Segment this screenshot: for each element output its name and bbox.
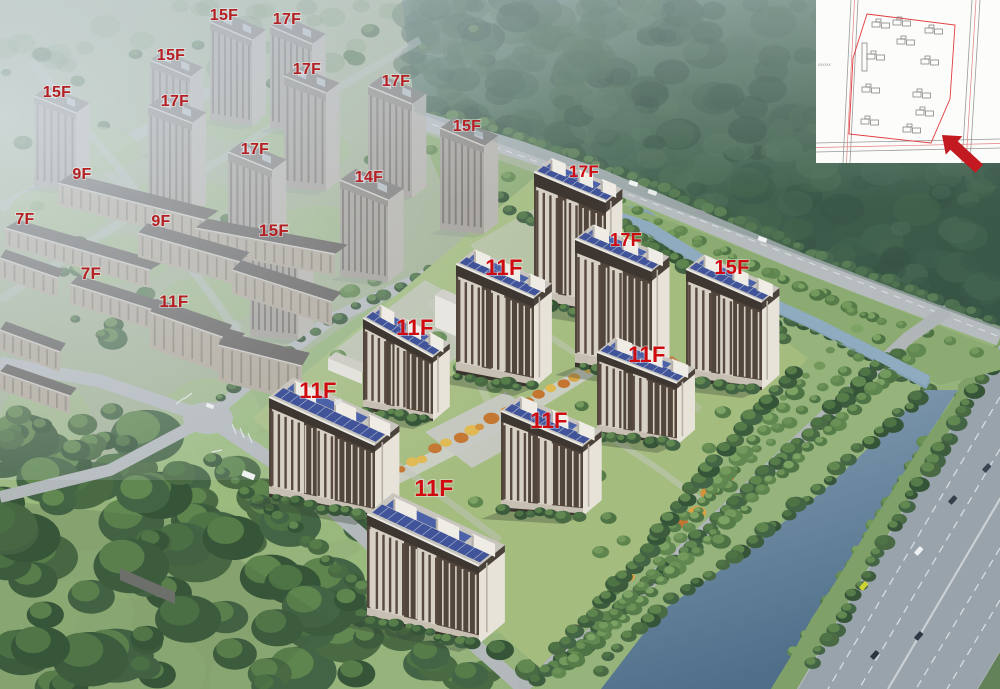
svg-text:11F: 11F — [299, 378, 337, 403]
svg-text:11F: 11F — [485, 255, 523, 280]
svg-text:15F: 15F — [157, 47, 185, 64]
svg-text:11F: 11F — [159, 292, 188, 311]
svg-text:17F: 17F — [382, 73, 410, 90]
svg-text:7F: 7F — [15, 211, 34, 228]
svg-text:17F: 17F — [610, 230, 642, 250]
svg-text:15F: 15F — [453, 118, 481, 135]
svg-text:14F: 14F — [355, 169, 383, 186]
svg-text:11F: 11F — [396, 315, 434, 340]
svg-text:9F: 9F — [72, 166, 91, 183]
svg-text:15F: 15F — [43, 84, 71, 101]
svg-text:11F: 11F — [530, 408, 568, 433]
svg-text:15F: 15F — [210, 7, 238, 24]
svg-text:7F: 7F — [81, 264, 101, 283]
svg-text:9F: 9F — [151, 213, 170, 230]
svg-text:XXXXXX: XXXXXX — [818, 63, 832, 67]
svg-text:17F: 17F — [273, 11, 301, 28]
svg-text:17F: 17F — [241, 141, 269, 158]
svg-text:15F: 15F — [259, 221, 289, 240]
svg-text:11F: 11F — [628, 342, 666, 367]
svg-text:15F: 15F — [714, 257, 749, 279]
svg-text:11F: 11F — [414, 475, 453, 501]
svg-text:17F: 17F — [293, 61, 321, 78]
svg-text:17F: 17F — [161, 93, 189, 110]
svg-text:17F: 17F — [569, 162, 599, 181]
